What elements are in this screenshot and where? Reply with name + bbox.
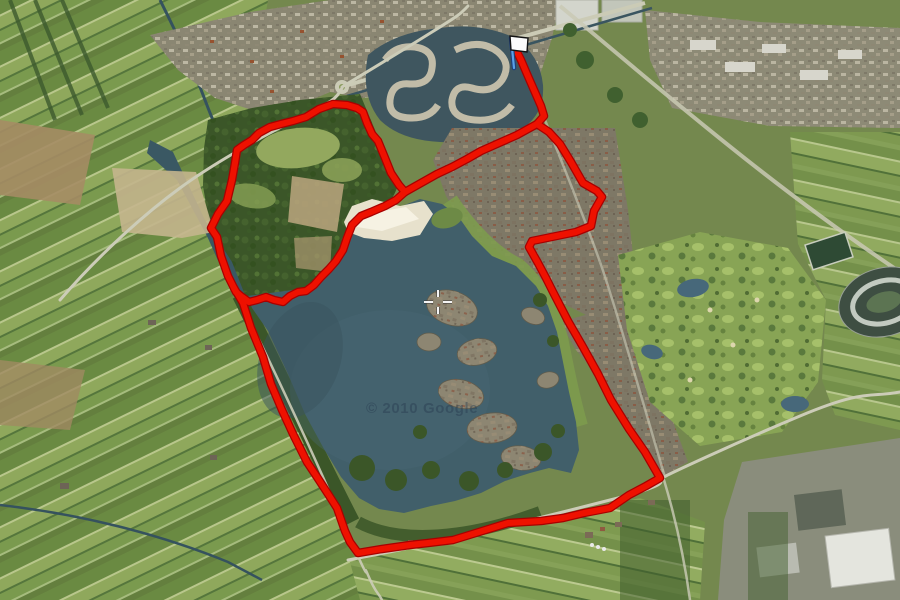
plowed-field xyxy=(0,120,95,205)
map-viewport[interactable]: © 2010 Google xyxy=(0,0,900,600)
plowed-field xyxy=(0,360,85,430)
flag-icon xyxy=(510,36,528,52)
tree-nursery xyxy=(620,500,690,600)
warehouse xyxy=(794,489,846,531)
copyright-watermark: © 2010 Google xyxy=(366,400,478,417)
meadow xyxy=(322,158,362,182)
bare-field xyxy=(288,176,344,232)
satellite-map[interactable]: © 2010 Google xyxy=(0,0,900,600)
tree-nursery xyxy=(748,512,788,600)
golf-pond xyxy=(781,396,809,412)
warehouse xyxy=(825,528,895,587)
